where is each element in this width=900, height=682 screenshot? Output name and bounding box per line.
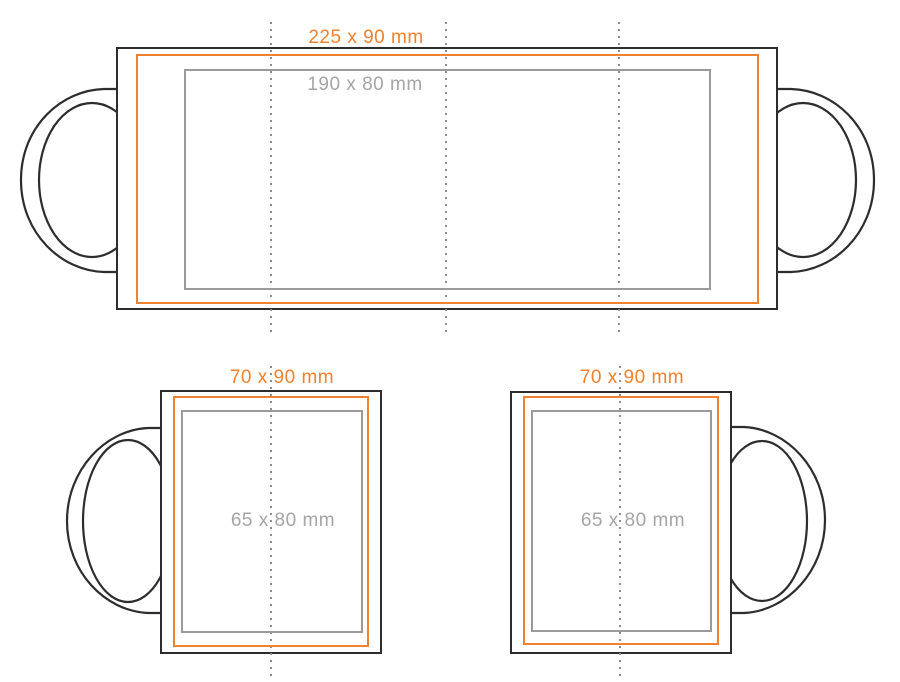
- mug-handle-right-icon: [728, 418, 832, 620]
- print-size-label: 65 x 80 mm: [581, 511, 685, 530]
- mug-handle-right-icon: [775, 82, 881, 280]
- print-area-outline: [184, 69, 711, 290]
- template-size-label: 225 x 90 mm: [308, 28, 423, 47]
- template-size-label: 70 x 90 mm: [580, 368, 684, 387]
- mug-handle-left-icon: [60, 418, 164, 620]
- template-size-label: 70 x 90 mm: [230, 368, 334, 387]
- print-size-label: 65 x 80 mm: [231, 511, 335, 530]
- mug-handle-left-icon: [14, 82, 120, 280]
- print-size-label: 190 x 80 mm: [307, 75, 422, 94]
- mug-print-template-diagram: 225 x 90 mm 190 x 80 mm 70 x 90 mm 65 x …: [0, 0, 900, 682]
